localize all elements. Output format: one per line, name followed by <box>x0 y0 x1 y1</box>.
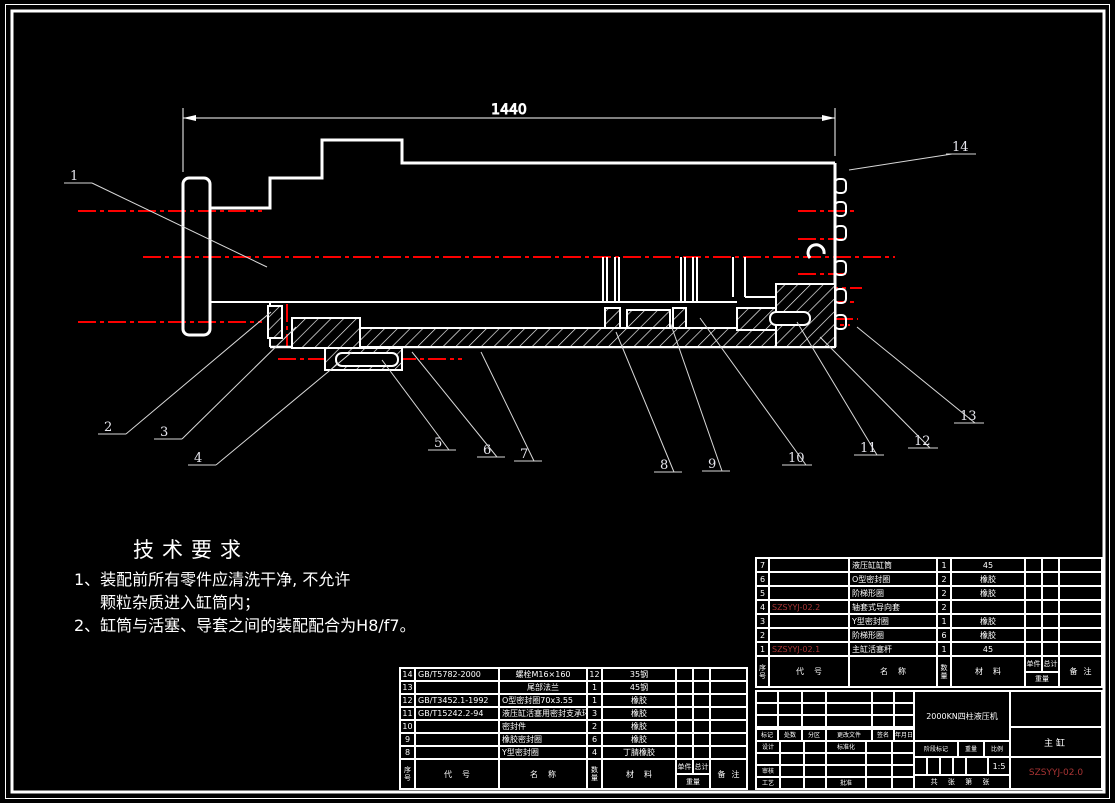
bom-material: 45 <box>952 559 1024 571</box>
bom-total <box>694 747 709 758</box>
bom-unit <box>1026 587 1041 599</box>
bom-material: 35钢 <box>603 669 675 680</box>
callout-leaders <box>64 154 984 472</box>
bom-total <box>1043 559 1058 571</box>
sheet-count-label: 共 张 第 张 <box>931 777 994 787</box>
bom-name: 液压缸活塞用密封支承环 <box>500 708 586 719</box>
bom-name: 阶梯形圈 <box>850 629 936 641</box>
callout-4: 4 <box>194 451 202 466</box>
bom-notes <box>1060 629 1101 641</box>
bom-header-row: 序号 代号 名称 数量 材料 单件 总计 重量 备注 <box>401 760 746 788</box>
bom-header-code: 代号 <box>416 760 498 788</box>
bom-code <box>416 682 498 693</box>
callout-13: 13 <box>960 409 977 424</box>
bom-header-weight: 重量 <box>677 775 709 788</box>
bom-total <box>1043 629 1058 641</box>
callout-14: 14 <box>952 140 969 155</box>
bom-code <box>416 747 498 758</box>
bom-name: 液压缸缸筒 <box>850 559 936 571</box>
bom-unit <box>1026 615 1041 627</box>
bom-notes <box>1060 615 1101 627</box>
callout-11: 11 <box>860 441 877 456</box>
bom-notes <box>711 682 746 693</box>
bom-row-8: 8 Y型密封圈 4 丁腈橡胶 <box>401 747 746 758</box>
rev-mark-label: 标记 <box>757 730 777 740</box>
bom-unit <box>677 669 692 680</box>
bom-unit <box>677 734 692 745</box>
bom-header-notes: 备注 <box>1060 657 1101 686</box>
bom-header-name: 名称 <box>850 657 936 686</box>
bom-header-material: 材料 <box>952 657 1024 686</box>
bom-total <box>1043 573 1058 585</box>
bom-header-seq: 序号 <box>401 760 414 788</box>
bom-notes <box>711 721 746 732</box>
bom-name: Y型密封圈 <box>500 747 586 758</box>
bom-material: 橡胶 <box>952 629 1024 641</box>
bom-material: 丁腈橡胶 <box>603 747 675 758</box>
bom-unit <box>1026 643 1041 655</box>
bom-notes <box>711 708 746 719</box>
bom-code <box>770 629 848 641</box>
bom-code <box>770 615 848 627</box>
bom-header-material: 材料 <box>603 760 675 788</box>
standardization-label: 标准化 <box>827 742 865 752</box>
bom-name: 螺栓M16×160 <box>500 669 586 680</box>
bom-material: 45钢 <box>603 682 675 693</box>
tech-requirement-1b: 颗粒杂质进入缸筒内； <box>100 589 260 613</box>
callout-numbers: 1 2 3 4 5 6 7 8 9 10 11 12 13 14 <box>70 140 977 473</box>
drawing-number-cell: SZSYYJ-02.0 <box>1011 758 1101 788</box>
bom-code: GB/T3452.1-1992 <box>416 695 498 706</box>
bom-total <box>694 682 709 693</box>
bom-header-qty: 数量 <box>588 760 601 788</box>
bom-total <box>1043 601 1058 613</box>
bom-qty: 1 <box>588 695 601 706</box>
bom-qty: 3 <box>588 708 601 719</box>
tech-requirement-2: 2、缸筒与活塞、导套之间的装配配合为H8/f7。 <box>74 612 416 636</box>
bom-unit <box>677 695 692 706</box>
piston-seal-section <box>627 310 670 328</box>
bom-code: SZSYYJ-02.2 <box>770 601 848 613</box>
bom-material: 橡胶 <box>603 708 675 719</box>
bom-notes <box>711 747 746 758</box>
bom-header-notes: 备注 <box>711 760 746 788</box>
sheet-count-cell: 共 张 第 张 <box>915 776 1009 788</box>
callout-9: 9 <box>708 457 716 472</box>
bom-material: 橡胶 <box>952 587 1024 599</box>
tech-requirement-1: 1、装配前所有零件应清洗干净, 不允许 <box>74 566 350 590</box>
bom-material <box>952 601 1024 613</box>
callout-8: 8 <box>660 458 668 473</box>
bom-header-code: 代号 <box>770 657 848 686</box>
bom-unit <box>677 708 692 719</box>
bom-seq: 4 <box>757 601 768 613</box>
bom-notes <box>711 669 746 680</box>
bom-total <box>694 695 709 706</box>
bom-total <box>1043 587 1058 599</box>
bom-header-total: 总计 <box>1043 657 1058 671</box>
bom-unit <box>1026 559 1041 571</box>
bom-unit <box>1026 601 1041 613</box>
bom-name: 阶梯形圈 <box>850 587 936 599</box>
bom-qty: 6 <box>938 629 950 641</box>
rear-bolt-slot <box>770 312 810 325</box>
stage-cells-row: 1:5 <box>915 758 1009 774</box>
weight-label: 重量 <box>959 742 983 756</box>
bom-notes <box>1060 587 1101 599</box>
bom-header-total: 总计 <box>694 760 709 773</box>
bom-seq: 1 <box>757 643 768 655</box>
bom-row-12: 12 GB/T3452.1-1992 O型密封圈70x3.55 1 橡胶 <box>401 695 746 706</box>
bom-row-11: 11 GB/T15242.2-94 液压缸活塞用密封支承环 3 橡胶 <box>401 708 746 719</box>
revision-header: 标记 处数 分区 更改文件 签名 年月日 <box>757 730 913 740</box>
design-label: 设计 <box>757 742 779 752</box>
bom-name: 橡胶密封圈 <box>500 734 586 745</box>
bom-qty: 1 <box>938 643 950 655</box>
bom-row-14: 14 GB/T5782-2000 螺栓M16×160 12 35钢 <box>401 669 746 680</box>
tech-requirements-title: 技术要求 <box>133 534 249 564</box>
revision-rows <box>757 692 913 726</box>
stage-label: 阶段标记 <box>915 742 957 756</box>
bom-code <box>416 734 498 745</box>
part-name-cell: 主缸 <box>1011 728 1101 756</box>
review-label: 审核 <box>757 766 779 776</box>
bom-unit <box>677 682 692 693</box>
process-label: 工艺 <box>757 778 779 788</box>
rear-flange-bolts <box>835 179 846 329</box>
bom-unit <box>677 747 692 758</box>
bom-name: O型密封圈70x3.55 <box>500 695 586 706</box>
callout-7: 7 <box>520 447 528 462</box>
bom-table-items-8-14: 14 GB/T5782-2000 螺栓M16×160 12 35钢 13 尾部法… <box>399 667 748 790</box>
bom-seq: 8 <box>401 747 414 758</box>
bom-seq: 7 <box>757 559 768 571</box>
bom-qty: 2 <box>938 587 950 599</box>
callout-6: 6 <box>483 443 491 458</box>
guide-sleeve-section <box>268 306 282 338</box>
part-name: 主缸 <box>1044 736 1068 749</box>
bom-row-6: 6 O型密封圈 2 橡胶 <box>757 573 1101 585</box>
bom-seq: 11 <box>401 708 414 719</box>
bom-qty: 2 <box>938 573 950 585</box>
bom-notes <box>1060 573 1101 585</box>
bom-code <box>770 573 848 585</box>
bom-seq: 2 <box>757 629 768 641</box>
bom-unit <box>1026 573 1041 585</box>
bom-unit <box>677 721 692 732</box>
dimension-text: 1440 <box>491 102 527 118</box>
bom-total <box>694 721 709 732</box>
bom-material: 橡胶 <box>603 721 675 732</box>
bom-material: 橡胶 <box>603 695 675 706</box>
rev-sign-label: 签名 <box>873 730 893 740</box>
company-cell <box>1011 692 1101 726</box>
rev-doc-label: 更改文件 <box>827 730 871 740</box>
bom-header-weight: 重量 <box>1026 673 1058 687</box>
rev-count-label: 处数 <box>779 730 801 740</box>
bom-material: 橡胶 <box>603 734 675 745</box>
bom-header-unit: 单件 <box>1026 657 1041 671</box>
bom-seq: 6 <box>757 573 768 585</box>
bom-qty: 12 <box>588 669 601 680</box>
bom-total <box>1043 643 1058 655</box>
bom-code: GB/T5782-2000 <box>416 669 498 680</box>
scale-value: 1:5 <box>989 758 1009 774</box>
bom-qty: 6 <box>588 734 601 745</box>
cad-sheet: 1440 <box>0 0 1115 803</box>
bom-notes <box>711 695 746 706</box>
bom-qty: 2 <box>588 721 601 732</box>
approve-label: 批准 <box>827 778 865 788</box>
callout-2: 2 <box>104 420 112 435</box>
bom-seq: 9 <box>401 734 414 745</box>
bom-seq: 3 <box>757 615 768 627</box>
bom-notes <box>1060 601 1101 613</box>
bom-seq: 5 <box>757 587 768 599</box>
bom-row-3: 3 Y型密封圈 1 橡胶 <box>757 615 1101 627</box>
bom-seq: 10 <box>401 721 414 732</box>
callout-12: 12 <box>914 434 931 449</box>
bom-row-13: 13 尾部法兰 1 45钢 <box>401 682 746 693</box>
product-name: 2000KN四柱液压机 <box>926 711 998 722</box>
bom-total <box>1043 615 1058 627</box>
bom-header-seq: 序号 <box>757 657 768 686</box>
bom-notes <box>1060 643 1101 655</box>
rev-zone-label: 分区 <box>803 730 825 740</box>
bom-material: 橡胶 <box>952 615 1024 627</box>
bom-total <box>694 708 709 719</box>
callout-10: 10 <box>788 451 805 466</box>
bom-code: GB/T15242.2-94 <box>416 708 498 719</box>
bom-row-7: 7 液压缸缸筒 1 45 <box>757 559 1101 571</box>
bom-row-9: 9 橡胶密封圈 6 橡胶 <box>401 734 746 745</box>
bom-qty: 4 <box>588 747 601 758</box>
bom-row-4: 4 SZSYYJ-02.2 轴套式导向套 2 <box>757 601 1101 613</box>
rev-date-label: 年月日 <box>895 730 913 740</box>
roles-rows: 设计 标准化 审核 工艺 批准 <box>757 742 913 788</box>
product-name-cell: 2000KN四柱液压机 <box>915 692 1009 740</box>
scale-label: 比例 <box>985 742 1009 756</box>
bom-name: 密封件 <box>500 721 586 732</box>
bom-qty: 1 <box>588 682 601 693</box>
bom-name: Y型密封圈 <box>850 615 936 627</box>
bom-total <box>694 669 709 680</box>
callout-1: 1 <box>70 169 78 184</box>
bom-code: SZSYYJ-02.1 <box>770 643 848 655</box>
bom-unit <box>1026 629 1041 641</box>
bom-header-unit: 单件 <box>677 760 692 773</box>
bom-seq: 14 <box>401 669 414 680</box>
bom-seq: 12 <box>401 695 414 706</box>
bom-row-1: 1 SZSYYJ-02.1 主缸活塞杆 1 45 <box>757 643 1101 655</box>
bom-row-2: 2 阶梯形圈 6 橡胶 <box>757 629 1101 641</box>
title-block: 标记 处数 分区 更改文件 签名 年月日 设计 标准化 审核 工艺 批准 <box>755 690 1103 790</box>
bom-name: 轴套式导向套 <box>850 601 936 613</box>
stage-weight-scale-row: 阶段标记 重量 比例 <box>915 742 1009 756</box>
bom-code <box>770 559 848 571</box>
bom-notes <box>711 734 746 745</box>
bom-seq: 13 <box>401 682 414 693</box>
bom-qty: 2 <box>938 601 950 613</box>
bom-header-qty: 数量 <box>938 657 950 686</box>
bom-code <box>416 721 498 732</box>
bom-name: O型密封圈 <box>850 573 936 585</box>
bom-table-items-1-7: 7 液压缸缸筒 1 45 6 O型密封圈 2 橡胶 5 阶梯形圈 2 橡胶 <box>755 557 1103 688</box>
bom-row-10: 10 密封件 2 橡胶 <box>401 721 746 732</box>
bom-name: 尾部法兰 <box>500 682 586 693</box>
bom-material: 45 <box>952 643 1024 655</box>
bom-qty: 1 <box>938 615 950 627</box>
drawing-number: SZSYYJ-02.0 <box>1029 768 1083 778</box>
bolt-slot <box>336 353 398 366</box>
callout-3: 3 <box>160 425 168 440</box>
bom-header-name: 名称 <box>500 760 586 788</box>
bom-total <box>694 734 709 745</box>
bom-header-row: 序号 代号 名称 数量 材料 单件 总计 重量 备注 <box>757 657 1101 686</box>
bom-row-5: 5 阶梯形圈 2 橡胶 <box>757 587 1101 599</box>
port-tubes <box>603 257 776 302</box>
bom-qty: 1 <box>938 559 950 571</box>
bom-header-weight-group: 单件 总计 重量 <box>677 760 709 788</box>
bom-header-weight-group: 单件 总计 重量 <box>1026 657 1058 686</box>
callout-5: 5 <box>434 436 442 451</box>
bom-material: 橡胶 <box>952 573 1024 585</box>
bom-name: 主缸活塞杆 <box>850 643 936 655</box>
bom-notes <box>1060 559 1101 571</box>
bom-code <box>770 587 848 599</box>
